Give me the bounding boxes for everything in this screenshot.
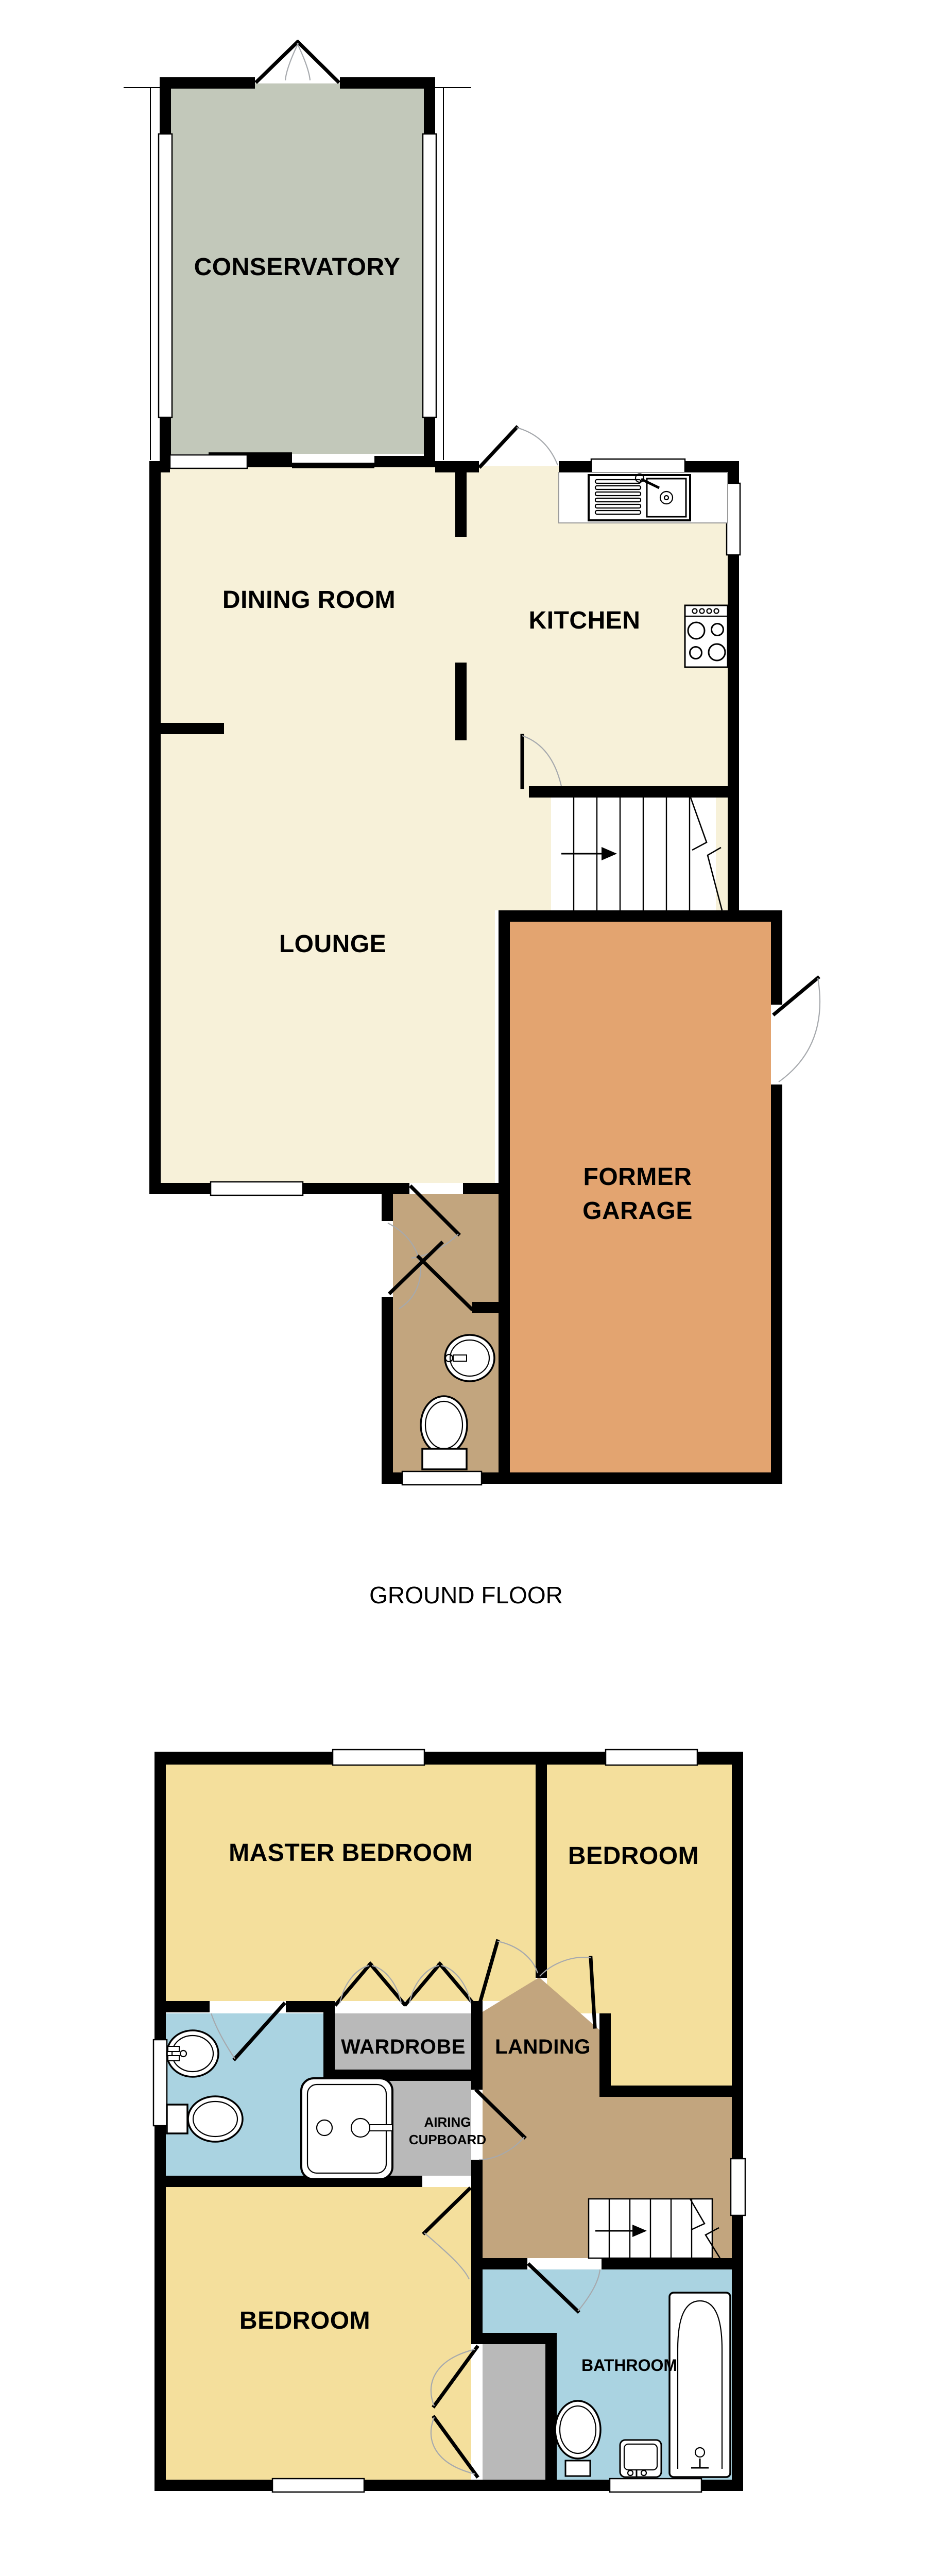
door-leaf: [480, 428, 517, 466]
wc-basin-icon: [445, 1335, 494, 1381]
door-leaf: [257, 42, 297, 81]
room-dining-lounge-floor: [161, 466, 495, 1183]
window: [170, 455, 247, 468]
door-leaf: [298, 42, 338, 81]
room-label-dining-room: DINING ROOM: [222, 586, 396, 614]
window: [272, 2479, 364, 2492]
stairs-first-icon: [589, 2199, 720, 2258]
window: [606, 1750, 697, 1765]
bedroom3-cupboard-floor: [483, 2344, 545, 2480]
window: [211, 1182, 303, 1195]
room-master-bedroom-floor: [166, 1765, 536, 2001]
cooker-hob-icon: [685, 605, 728, 667]
hot-water-cylinder-icon: [301, 2078, 392, 2179]
window: [423, 134, 436, 417]
door-arc: [517, 428, 558, 465]
window: [727, 483, 740, 555]
room-label-kitchen: KITCHEN: [529, 607, 641, 634]
room-label-bedroom3: BEDROOM: [239, 2307, 370, 2334]
window: [591, 459, 685, 473]
room-label-bedroom2: BEDROOM: [568, 1842, 699, 1870]
ground-floor-title: GROUND FLOOR: [369, 1582, 563, 1608]
floorplan-page: CONSERVATORY DINING ROOM KITCHEN LOUNGE …: [0, 0, 927, 2576]
window: [402, 1471, 482, 1485]
wc-toilet-icon: [421, 1396, 467, 1469]
window: [731, 2159, 745, 2215]
room-bedroom2-floor-ext: [611, 2013, 732, 2086]
room-label-bathroom: BATHROOM: [581, 2356, 677, 2375]
bathtub-icon: [669, 2293, 730, 2477]
ground-floor-room-fills: [161, 83, 771, 1472]
room-label-airing-line1: AIRING: [424, 2114, 471, 2130]
ground-floor-plan: CONSERVATORY DINING ROOM KITCHEN LOUNGE …: [124, 42, 820, 1608]
room-label-former-garage-line1: FORMER: [583, 1163, 692, 1191]
room-label-landing: LANDING: [495, 2036, 591, 2058]
room-label-lounge: LOUNGE: [279, 930, 386, 958]
room-label-wardrobe: WARDROBE: [341, 2036, 466, 2058]
ensuite-basin-icon: [167, 2030, 218, 2077]
first-floor-plan: MASTER BEDROOM BEDROOM WARDROBE LANDING …: [153, 1750, 745, 2576]
kitchen-sink-icon: [589, 474, 690, 520]
window: [610, 2479, 701, 2492]
floorplan-figure: CONSERVATORY DINING ROOM KITCHEN LOUNGE …: [0, 0, 927, 2576]
stairs-ground-icon: [551, 798, 722, 910]
window: [159, 134, 172, 417]
room-label-airing-line2: CUPBOARD: [409, 2132, 486, 2147]
room-label-former-garage-line2: GARAGE: [582, 1197, 693, 1225]
bathroom-sink-icon: [620, 2440, 661, 2477]
room-label-conservatory: CONSERVATORY: [194, 253, 401, 281]
room-bedroom2-floor: [547, 1765, 732, 2013]
window: [333, 1750, 424, 1765]
window: [153, 2040, 167, 2126]
room-label-master-bedroom: MASTER BEDROOM: [229, 1839, 473, 1867]
